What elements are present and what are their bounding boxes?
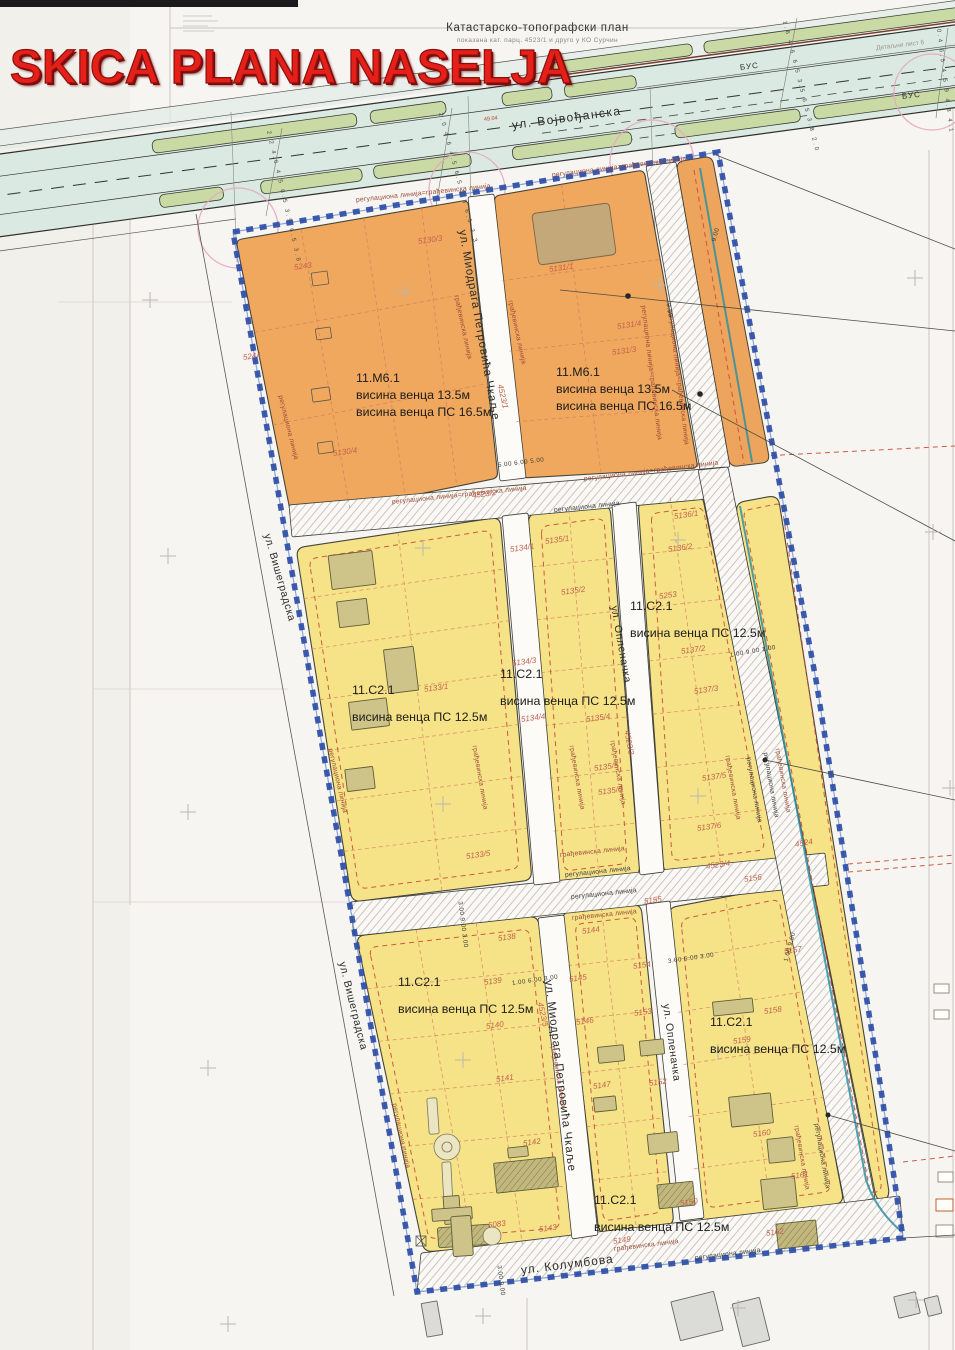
page-title: SKICA PLANA NASELJA: [10, 40, 572, 95]
scanned-plan-page: SKICA PLANA NASELJA Катастарско-топограф…: [0, 0, 955, 1350]
plan-subtitle: показана кат. парц. 4523/1 и друго у КО …: [420, 37, 655, 44]
map-drawing: [0, 0, 955, 1350]
plan-header: Катастарско-топографски план показана ка…: [420, 22, 655, 44]
plan-title: Катастарско-топографски план: [420, 22, 655, 34]
